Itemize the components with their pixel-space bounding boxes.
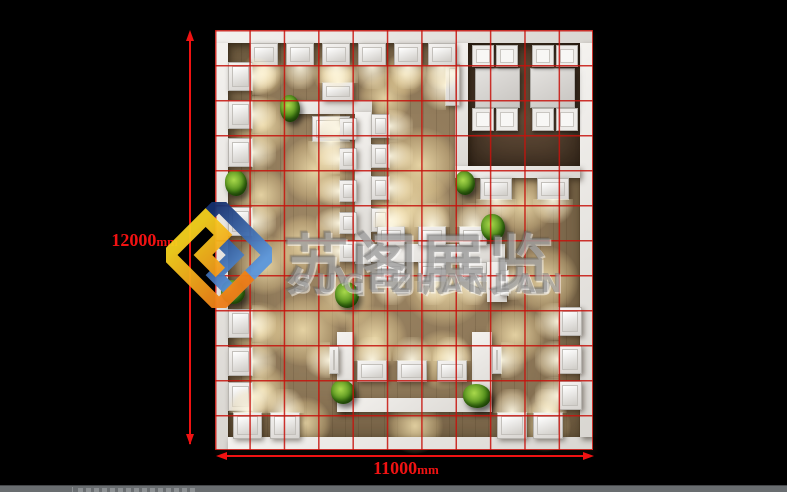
plant: [280, 95, 300, 122]
plant: [455, 171, 475, 195]
taskbar-divider: [72, 487, 73, 492]
plant: [331, 380, 355, 404]
dimension-arrow-down-icon: [186, 434, 194, 445]
width-unit: mm: [417, 462, 439, 477]
watermark-brand-pinyin: SUGEZHANLAN: [292, 269, 567, 299]
width-value: 11000: [373, 458, 417, 478]
plant: [463, 384, 491, 408]
taskbar-buttons: [78, 488, 196, 492]
dimension-arrow-up-icon: [186, 30, 194, 41]
dimension-arrow-right-icon: [583, 452, 594, 460]
width-dimension-line: [219, 455, 591, 457]
height-value: 12000: [111, 230, 156, 250]
width-dimension-label: 11000mm: [356, 459, 456, 477]
viewport: 12000mm 11000mm 苏阁展览 SUGEZHANLAN: [0, 0, 787, 492]
taskbar[interactable]: [0, 485, 787, 492]
sugezhanlan-logo-icon: [166, 202, 272, 308]
dimension-arrow-left-icon: [216, 452, 227, 460]
plant: [225, 170, 247, 196]
